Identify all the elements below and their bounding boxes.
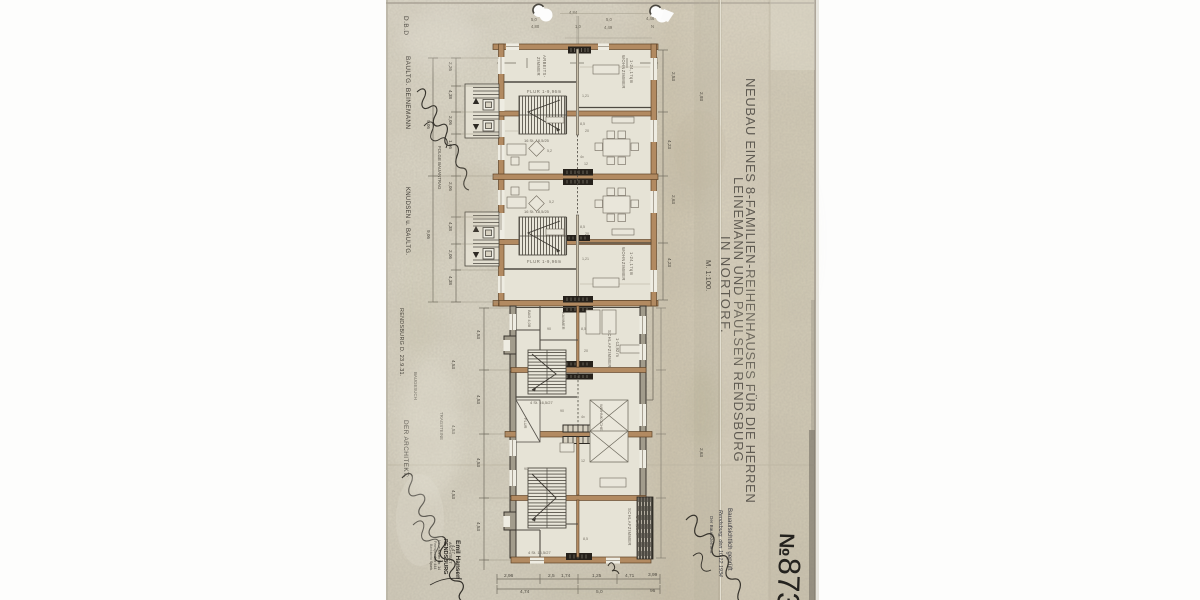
- svg-text:1-13,92 m: 1-13,92 m: [615, 338, 620, 357]
- svg-text:4,80: 4,80: [531, 24, 540, 29]
- svg-text:4,53: 4,53: [476, 330, 481, 339]
- svg-text:FOLGE BAUANTRAG: FOLGE BAUANTRAG: [437, 146, 442, 190]
- svg-text:4x: 4x: [580, 155, 584, 159]
- svg-text:4,38: 4,38: [448, 90, 453, 99]
- svg-text:SCHLAFZIMMER: SCHLAFZIMMER: [607, 330, 612, 368]
- svg-text:FLUR 1-9,96m: FLUR 1-9,96m: [527, 89, 562, 94]
- svg-text:2,53: 2,53: [671, 72, 676, 81]
- svg-text:20: 20: [585, 232, 589, 236]
- svg-text:4x: 4x: [581, 415, 585, 419]
- svg-text:4,38: 4,38: [448, 222, 453, 231]
- svg-text:FLUR: FLUR: [523, 418, 528, 429]
- svg-text:BAD 4,08: BAD 4,08: [527, 310, 532, 328]
- svg-text:1,21: 1,21: [582, 257, 589, 261]
- svg-text:WOHNKÜCHE: WOHNKÜCHE: [599, 404, 604, 431]
- svg-text:M. 1:100.: M. 1:100.: [704, 260, 713, 291]
- svg-text:KNUDSEN u. BAULTG.: KNUDSEN u. BAULTG.: [404, 187, 410, 255]
- svg-text:20: 20: [585, 129, 589, 133]
- svg-text:5,0: 5,0: [606, 17, 612, 22]
- svg-text:2,06: 2,06: [448, 116, 453, 125]
- svg-text:2,63: 2,63: [699, 448, 704, 457]
- svg-text:5,2: 5,2: [547, 149, 552, 153]
- svg-text:1-17,90 m: 1-17,90 m: [635, 516, 640, 535]
- svg-text:4,53: 4,53: [476, 395, 481, 404]
- svg-text:90: 90: [560, 409, 564, 413]
- svg-text:8,5: 8,5: [580, 225, 585, 229]
- svg-text:KAMMER: KAMMER: [561, 312, 566, 330]
- svg-text:4,53: 4,53: [476, 458, 481, 467]
- svg-text:5,2: 5,2: [549, 200, 554, 204]
- svg-text:4,49: 4,49: [604, 25, 613, 30]
- svg-text:2,96: 2,96: [504, 573, 514, 579]
- svg-text:20: 20: [584, 349, 588, 353]
- svg-text:4 St. 16,5/27: 4 St. 16,5/27: [528, 550, 551, 555]
- svg-text:4,46: 4,46: [646, 16, 655, 21]
- svg-text:8,5: 8,5: [581, 327, 586, 331]
- svg-text:Emil Hansen: Emil Hansen: [454, 540, 461, 579]
- svg-text:8,5: 8,5: [580, 122, 585, 126]
- svg-text:Bauaufsichtlich geprüft: Bauaufsichtlich geprüft: [726, 508, 733, 571]
- svg-text:4,38: 4,38: [448, 276, 453, 285]
- svg-text:RENDSBURG: RENDSBURG: [442, 539, 448, 574]
- svg-text:1-24,17qm: 1-24,17qm: [629, 60, 634, 84]
- svg-text:N: N: [651, 24, 654, 29]
- svg-text:3,99: 3,99: [648, 572, 658, 578]
- svg-text:12: 12: [584, 162, 588, 166]
- svg-text:4,74: 4,74: [520, 589, 530, 595]
- svg-text:4 St. 16,5/27: 4 St. 16,5/27: [530, 400, 553, 405]
- svg-text:5,0: 5,0: [531, 17, 537, 22]
- svg-text:4,53: 4,53: [451, 360, 456, 369]
- svg-text:1,0: 1,0: [575, 24, 581, 29]
- svg-text:4,53: 4,53: [476, 522, 481, 531]
- svg-text:4,23: 4,23: [667, 258, 672, 267]
- svg-text:BAULTG. BEINEMANN: BAULTG. BEINEMANN: [404, 56, 411, 129]
- svg-text:WOHNZIMMER: WOHNZIMMER: [621, 247, 626, 281]
- svg-text:Rendsburg, den 10.12.1934: Rendsburg, den 10.12.1934: [717, 510, 723, 577]
- svg-text:2,5: 2,5: [548, 573, 555, 579]
- svg-text:SCHLAFZIMMER: SCHLAFZIMMER: [627, 508, 632, 546]
- svg-text:FLUR 1-9,96m: FLUR 1-9,96m: [527, 259, 562, 264]
- svg-text:90: 90: [524, 467, 528, 471]
- svg-text:9,06: 9,06: [426, 230, 431, 239]
- svg-text:4,53: 4,53: [451, 490, 456, 499]
- svg-text:2,06: 2,06: [448, 250, 453, 259]
- svg-text:ARBEITS-: ARBEITS-: [542, 55, 547, 78]
- svg-text:12: 12: [581, 459, 585, 463]
- svg-text:4,23: 4,23: [667, 140, 672, 149]
- svg-text:8,5: 8,5: [583, 537, 588, 541]
- svg-text:WOHNZIMMER: WOHNZIMMER: [621, 55, 626, 89]
- svg-text:2,93: 2,93: [699, 92, 704, 101]
- svg-text:1-24,17qm: 1-24,17qm: [629, 252, 634, 276]
- svg-text:ZIMMER: ZIMMER: [536, 57, 541, 76]
- svg-text:4,84: 4,84: [569, 10, 578, 15]
- svg-text:90: 90: [547, 327, 551, 331]
- svg-text:1,21: 1,21: [582, 94, 589, 98]
